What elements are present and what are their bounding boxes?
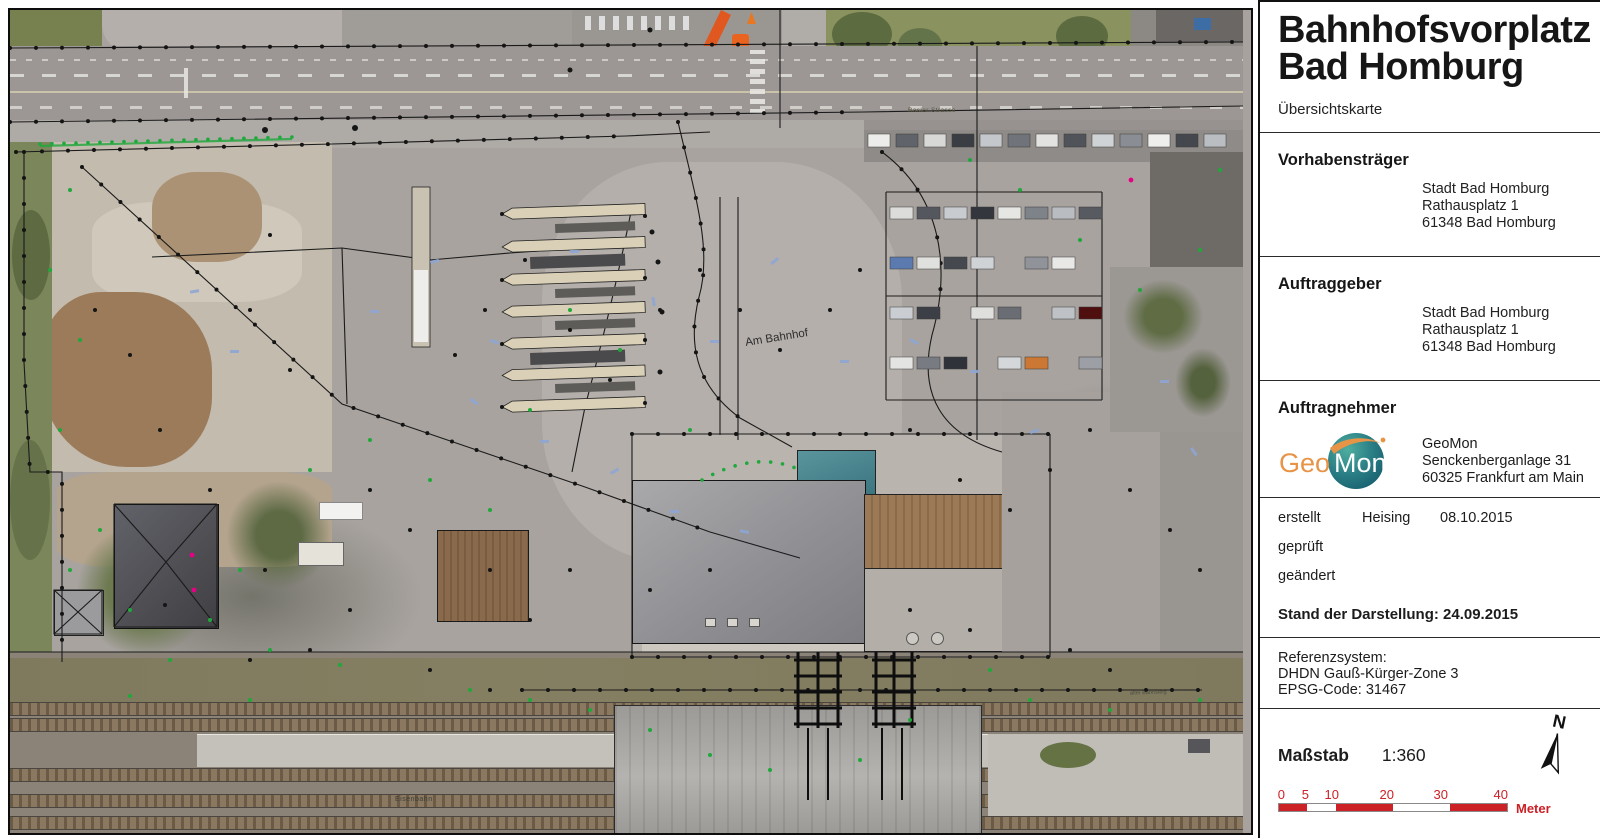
auftragnehmer-address: GeoMon Senckenberganlage 31 60325 Frankf… [1422, 436, 1584, 492]
title-block: Bahnhofsvorplatz Bad Homburg Übersichtsk… [1258, 0, 1600, 838]
address-line: 61348 Bad Homburg [1422, 339, 1594, 356]
scale-segment [1336, 804, 1393, 811]
tick: 10 [1324, 787, 1338, 802]
tick: 5 [1302, 787, 1309, 802]
address-line: Rathausplatz 1 [1422, 198, 1594, 215]
address-line: Stadt Bad Homburg [1422, 181, 1594, 198]
magenta-points [190, 178, 1134, 593]
address-line: Stadt Bad Homburg [1422, 305, 1594, 322]
geomon-logo: Geo Mon [1278, 430, 1390, 492]
scale-section: Maßstab 1:360 N 0 5 10 20 30 40 [1260, 709, 1600, 838]
auftraggeber-heading: Auftraggeber [1278, 257, 1594, 294]
scale-segment [1393, 804, 1450, 811]
green-fence-bars [40, 139, 292, 146]
auftraggeber-section: Auftraggeber Stadt Bad Homburg Rathauspl… [1260, 257, 1600, 381]
reference-system-section: Referenzsystem: DHDN Gauß-Kürger-Zone 3 … [1260, 638, 1600, 709]
address-line: Senckenberganlage 31 [1422, 453, 1584, 470]
auftraggeber-address: Stadt Bad Homburg Rathausplatz 1 61348 B… [1422, 305, 1594, 356]
tick: 0 [1278, 787, 1285, 802]
title-line-2: Bad Homburg [1278, 46, 1524, 88]
street-cars [868, 134, 1226, 147]
survey-overlay [10, 10, 1251, 833]
auftragnehmer-section: Auftragnehmer Geo Mon GeoMon Senckenberg… [1260, 381, 1600, 498]
title-section: Bahnhofsvorplatz Bad Homburg Übersichtsk… [1260, 2, 1600, 133]
tick: 30 [1433, 787, 1447, 802]
logo-trademark-dot [1381, 438, 1386, 443]
scale-segment [1307, 804, 1336, 811]
reference-line: EPSG-Code: 31467 [1278, 682, 1594, 698]
scale-segment [1450, 804, 1507, 811]
reference-line: DHDN Gauß-Kürger-Zone 3 [1278, 666, 1594, 682]
address-line: 60325 Frankfurt am Main [1422, 470, 1584, 487]
north-arrow: N [1522, 713, 1582, 793]
auftragnehmer-heading: Auftragnehmer [1278, 381, 1594, 418]
page-title: Bahnhofsvorplatz Bad Homburg [1278, 2, 1594, 86]
logo-text-mon: Mon [1334, 448, 1387, 478]
erstellt-name: Heising [1362, 510, 1440, 527]
scale-segment [1279, 804, 1307, 811]
reference-line: Referenzsystem: [1278, 650, 1594, 666]
erstellt-date: 08.10.2015 [1440, 510, 1513, 527]
railway-label: Eisenbahn [395, 796, 433, 803]
green-points [48, 158, 1222, 772]
vorhabenstraeger-address: Stadt Bad Homburg Rathausplatz 1 61348 B… [1422, 181, 1594, 232]
platform-note-label: alter Bahnsteig [1130, 689, 1167, 696]
orthophoto-map: Basler Strasse Am Bahnhof Eisenbahn alte… [8, 8, 1253, 835]
scale-bar: 0 5 10 20 30 40 Meter [1278, 787, 1578, 812]
tick: 20 [1379, 787, 1393, 802]
parking-cars [890, 207, 1102, 369]
address-line: GeoMon [1422, 436, 1584, 453]
massstab-label: Maßstab [1278, 745, 1349, 765]
logo-text-geo: Geo [1279, 448, 1330, 478]
vorhabenstraeger-section: Vorhabensträger Stadt Bad Homburg Rathau… [1260, 133, 1600, 257]
blue-annotations [190, 250, 1198, 534]
north-label: N [1551, 713, 1568, 733]
revision-section: erstellt Heising 08.10.2015 geprüft geän… [1260, 498, 1600, 638]
address-line: 61348 Bad Homburg [1422, 215, 1594, 232]
street-label-basler-strasse: Basler Strasse [908, 107, 956, 114]
geaendert-label: geändert [1278, 568, 1362, 585]
catenary-masts [794, 652, 916, 800]
scale-ratio: 1:360 [1382, 745, 1426, 765]
address-line: Rathausplatz 1 [1422, 322, 1594, 339]
map-subtitle: Übersichtskarte [1278, 101, 1594, 118]
vorhabenstraeger-heading: Vorhabensträger [1278, 133, 1594, 170]
tick: 40 [1493, 787, 1507, 802]
stand-der-darstellung: Stand der Darstellung: 24.09.2015 [1278, 606, 1594, 623]
geprueft-label: geprüft [1278, 539, 1362, 556]
erstellt-label: erstellt [1278, 510, 1362, 527]
title-line-1: Bahnhofsvorplatz [1278, 9, 1591, 51]
scale-ticks: 0 5 10 20 30 40 [1278, 787, 1578, 802]
scale-bar-segments [1278, 803, 1508, 812]
scale-unit-label: Meter [1516, 801, 1551, 816]
